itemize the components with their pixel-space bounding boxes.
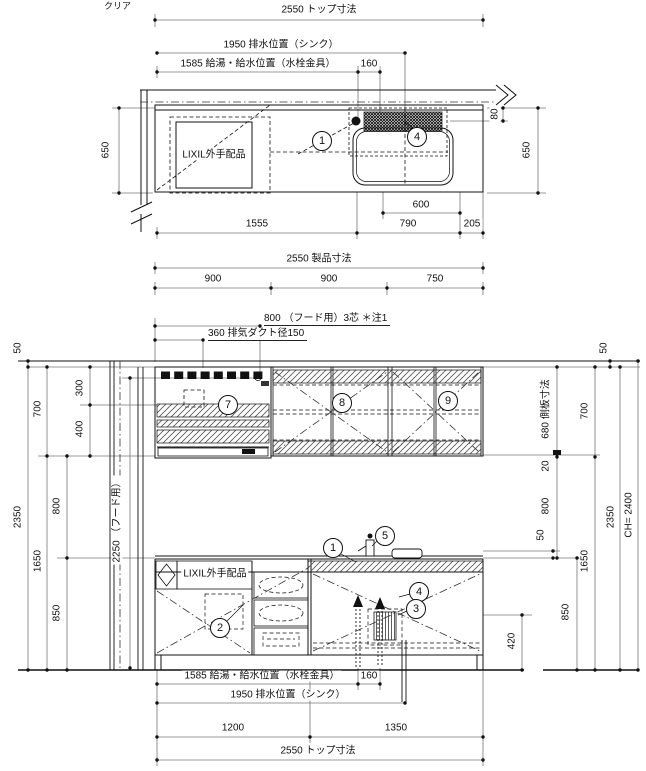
product-w2: 900 bbox=[319, 274, 340, 285]
hood-power-dim: 800 （フード用）3芯 ＊注1 bbox=[264, 313, 390, 326]
elev-r2350: 2350 bbox=[606, 504, 617, 530]
counter-section bbox=[308, 561, 483, 572]
bottom-supply-dim: 1585 給湯・給水位置（水栓金具） bbox=[182, 671, 341, 682]
elev-marker-5: 5 bbox=[375, 526, 395, 546]
elev-marker-3: 3 bbox=[406, 599, 426, 619]
elev-l700: 700 bbox=[33, 399, 44, 420]
elev-hood-height: 2250 （フード用） bbox=[112, 475, 123, 564]
hood-duct-dim: 360 排気ダクト径150 bbox=[208, 328, 307, 341]
bottom-1200-dim: 1200 bbox=[220, 723, 246, 734]
product-w3: 750 bbox=[425, 274, 446, 285]
elev-r700: 700 bbox=[580, 401, 591, 422]
elev-l300: 300 bbox=[75, 378, 86, 399]
plan-80-dim: 80 bbox=[490, 106, 501, 121]
elev-l50: 50 bbox=[13, 340, 24, 355]
elev-parts-label: LIXIL外手配品 bbox=[181, 569, 248, 580]
plan-790-dim: 790 bbox=[398, 219, 419, 230]
bottom-1350-dim: 1350 bbox=[383, 723, 409, 734]
elev-marker-9: 9 bbox=[438, 391, 458, 411]
product-total-dim: 2550 製品寸法 bbox=[284, 254, 353, 265]
bottom-160-dim: 160 bbox=[359, 671, 380, 682]
elev-l1650: 1650 bbox=[33, 548, 44, 574]
plan-160-dim: 160 bbox=[359, 59, 380, 70]
elev-r850: 850 bbox=[561, 602, 572, 623]
elev-l2350: 2350 bbox=[13, 504, 24, 530]
plan-marker-4: 4 bbox=[407, 127, 427, 147]
elev-r680: 680 側板寸法 bbox=[541, 377, 552, 440]
product-w1: 900 bbox=[203, 274, 224, 285]
elev-r50b: 50 bbox=[536, 527, 547, 542]
bottom-top-dim: 2550 トップ寸法 bbox=[278, 746, 357, 757]
elev-l400: 400 bbox=[75, 419, 86, 440]
plan-depth-right: 650 bbox=[522, 140, 533, 161]
plan-drain-dim: 1950 排水位置（シンク） bbox=[221, 40, 340, 51]
elev-r1650: 1650 bbox=[580, 548, 591, 574]
elev-r20: 20 bbox=[541, 458, 552, 473]
wall-cabinets bbox=[271, 367, 483, 456]
elev-marker-2: 2 bbox=[210, 618, 230, 638]
elev-marker-7: 7 bbox=[218, 395, 238, 415]
plan-top-dim: 2550 トップ寸法 bbox=[279, 5, 358, 16]
kitchen-installation-drawing: クリア 2550 トップ寸法 1950 排水位置（シンク） 1585 給湯・給水… bbox=[0, 0, 646, 771]
plan-1555-dim: 1555 bbox=[244, 219, 270, 230]
elev-r800: 800 bbox=[541, 496, 552, 517]
plan-marker-1: 1 bbox=[312, 131, 332, 151]
elev-l800: 800 bbox=[52, 496, 63, 517]
elev-r50: 50 bbox=[599, 340, 610, 355]
plan-faucet bbox=[352, 112, 443, 131]
drain-trap bbox=[374, 612, 396, 640]
elev-marker-8: 8 bbox=[332, 393, 352, 413]
plan-sink bbox=[353, 128, 453, 185]
plan-depth-left: 650 bbox=[101, 140, 112, 161]
plan-205-dim: 205 bbox=[462, 219, 483, 230]
clearance-label: クリア bbox=[104, 2, 131, 12]
plan-parts-label: LIXIL外手配品 bbox=[180, 150, 247, 161]
range-hood bbox=[155, 367, 271, 458]
elev-l850: 850 bbox=[52, 603, 63, 624]
elev-marker-1: 1 bbox=[323, 538, 343, 558]
bottom-drain-dim: 1950 排水位置（シンク） bbox=[228, 690, 347, 701]
plan-600-dim: 600 bbox=[411, 200, 432, 211]
elev-ceiling-height: CH= 2400 bbox=[624, 490, 635, 539]
plan-supply-dim: 1585 給湯・給水位置（水栓金具） bbox=[178, 59, 337, 70]
elev-420-dim: 420 bbox=[507, 631, 518, 652]
